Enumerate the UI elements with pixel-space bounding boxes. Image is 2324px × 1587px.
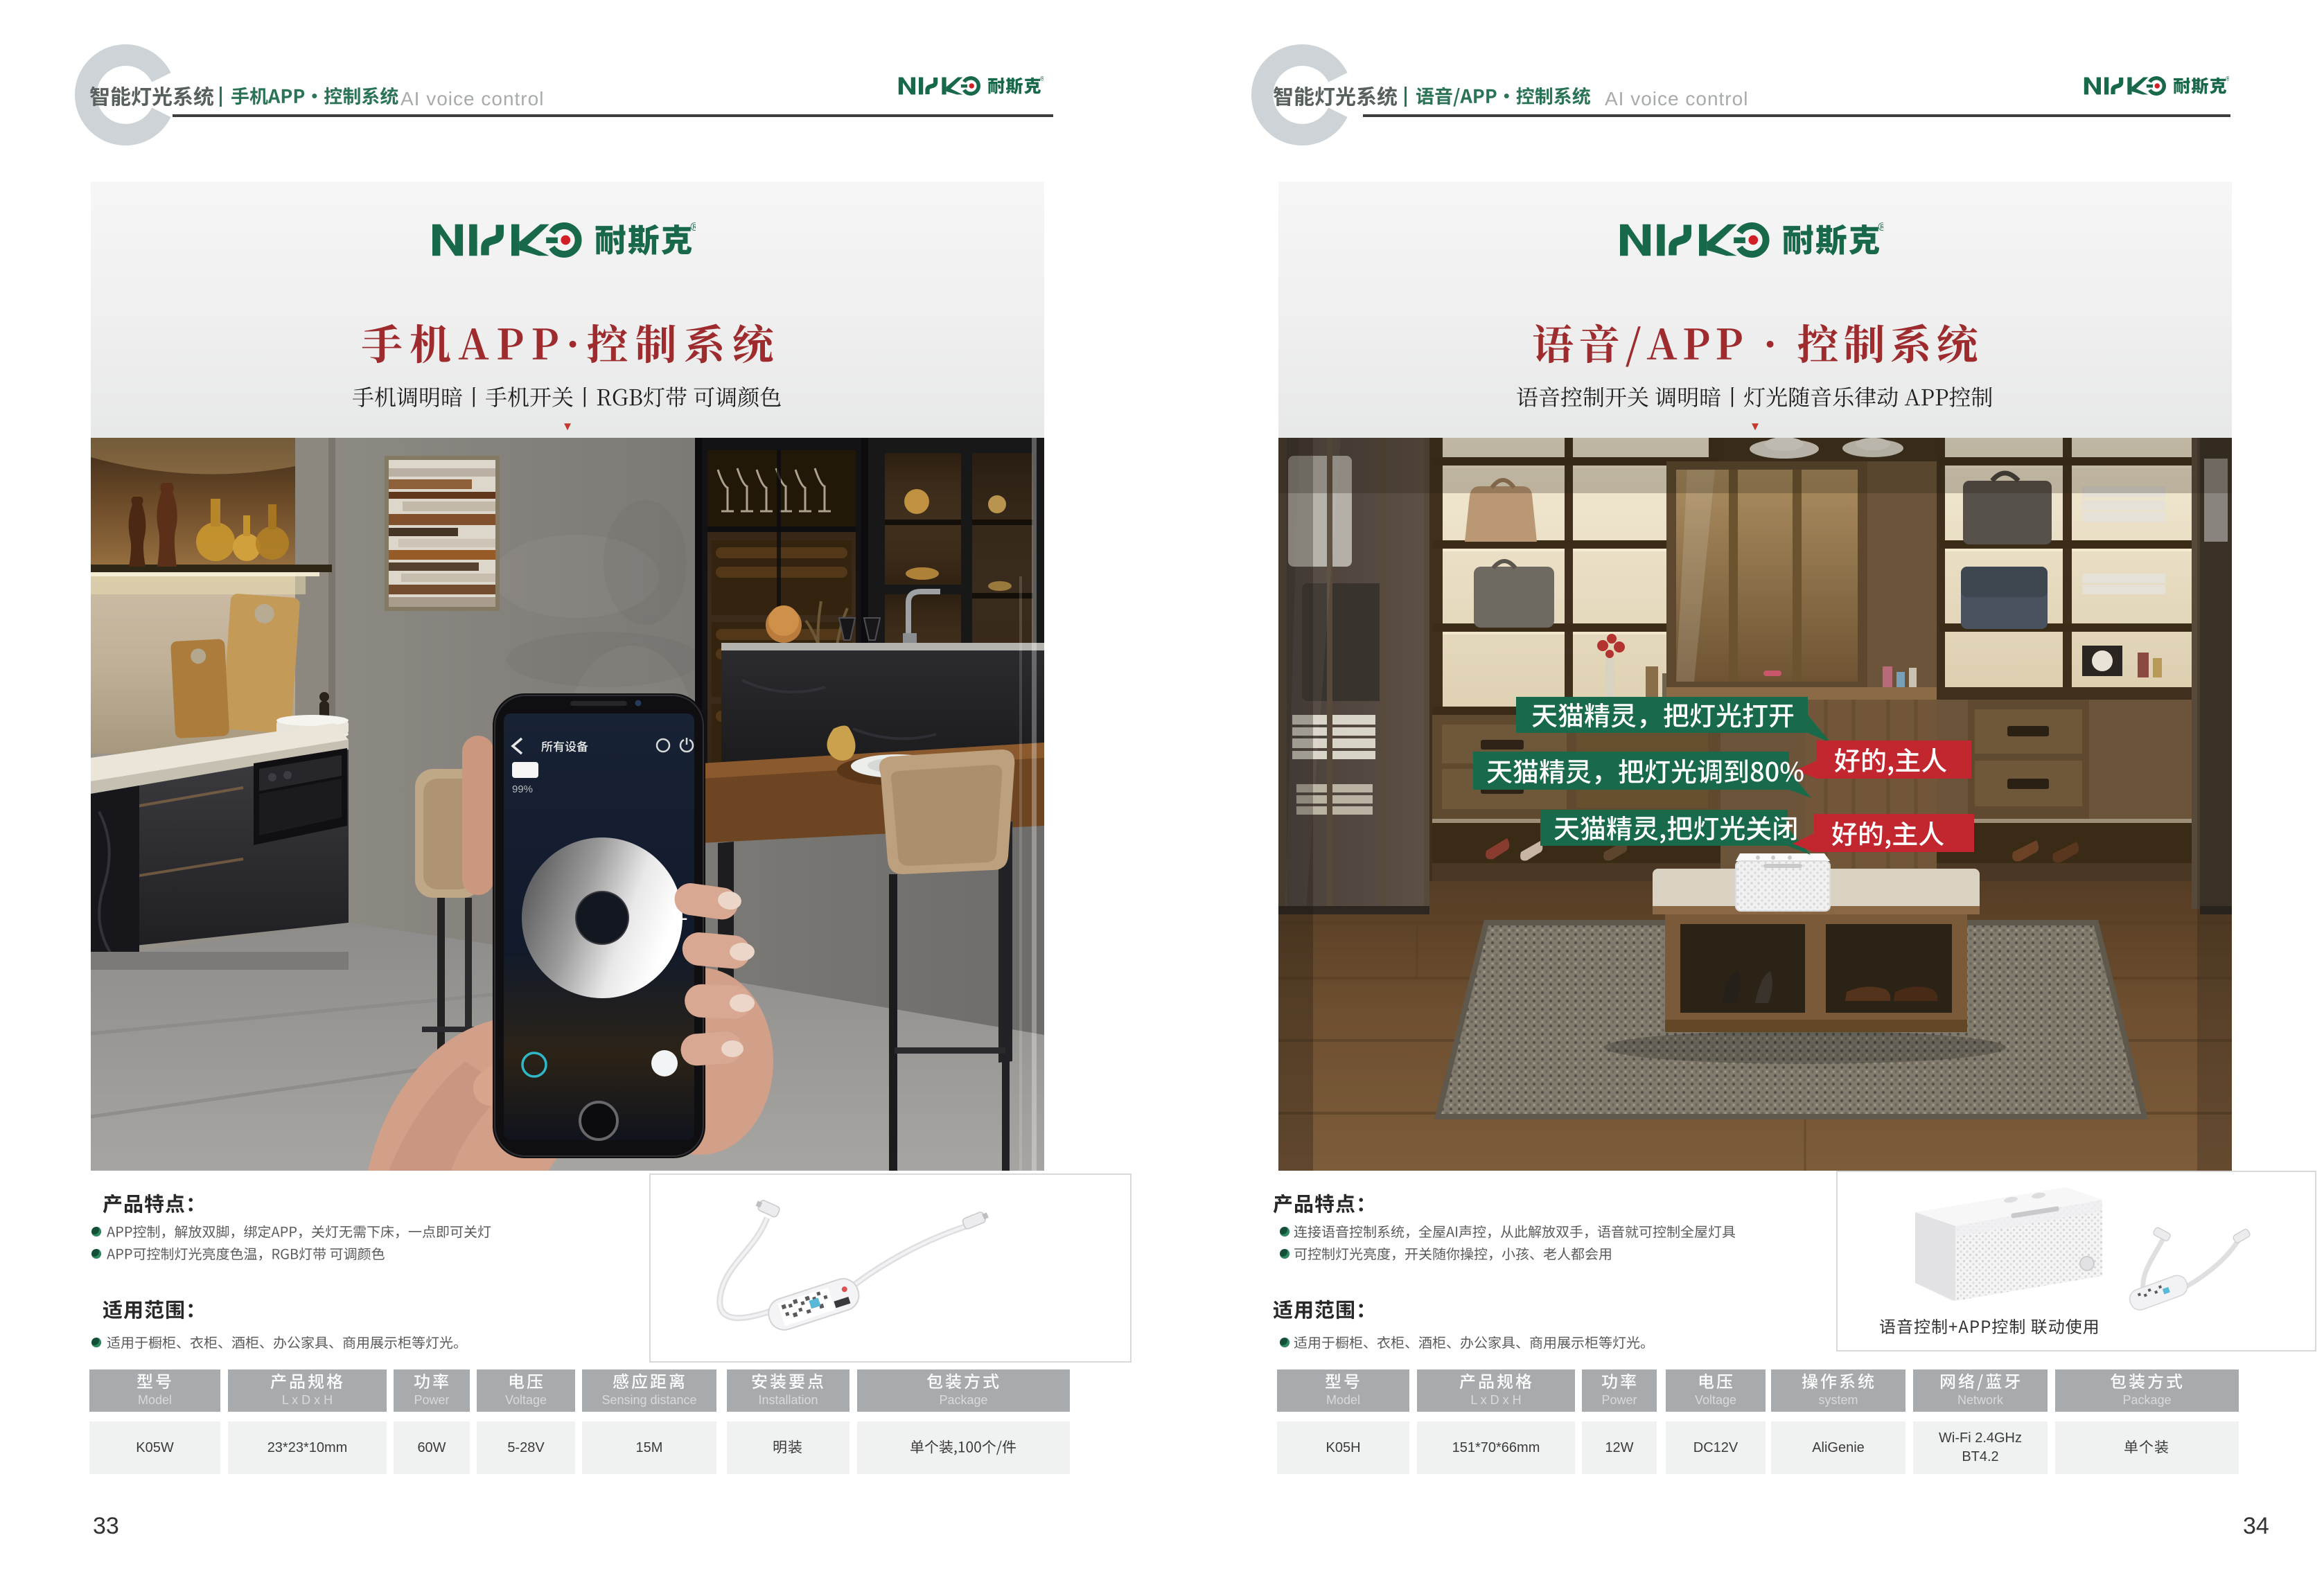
svg-text:99%: 99%: [512, 783, 533, 795]
